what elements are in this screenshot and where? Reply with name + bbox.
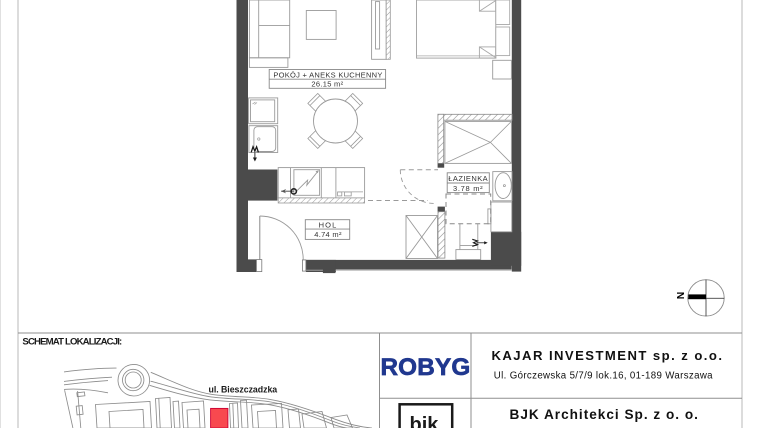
svg-text:26.15 m²: 26.15 m² (311, 80, 343, 89)
svg-text:BJK Architekci Sp. z o. o.: BJK Architekci Sp. z o. o. (510, 407, 699, 422)
svg-text:SCHEMAT LOKALIZACJI:: SCHEMAT LOKALIZACJI: (22, 336, 122, 347)
svg-text:HOL: HOL (319, 221, 338, 230)
svg-text:4.74 m²: 4.74 m² (314, 230, 342, 239)
svg-text:bjk: bjk (410, 414, 440, 428)
svg-text:ROBYG: ROBYG (380, 354, 470, 381)
svg-text:Ul. Górczewska 5/7/9 lok.16, 0: Ul. Górczewska 5/7/9 lok.16, 01-189 Wars… (494, 370, 713, 381)
svg-text:ul. Bieszczadzka: ul. Bieszczadzka (209, 385, 278, 395)
svg-text:POKÓJ + ANEKS KUCHENNY: POKÓJ + ANEKS KUCHENNY (273, 71, 382, 80)
svg-text:ŁAZIENKA: ŁAZIENKA (448, 174, 488, 183)
svg-text:KAJAR INVESTMENT sp. z o.o.: KAJAR INVESTMENT sp. z o.o. (492, 348, 724, 363)
svg-text:N: N (676, 292, 687, 300)
svg-text:3.78 m²: 3.78 m² (453, 184, 483, 193)
